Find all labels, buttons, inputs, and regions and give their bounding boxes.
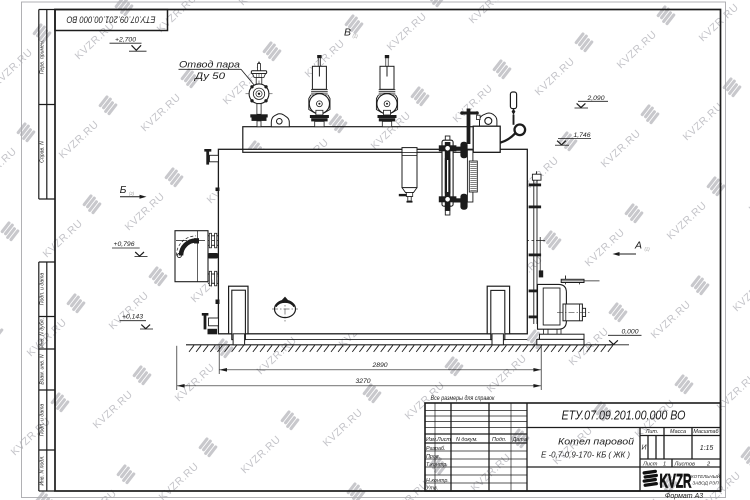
svg-text:Н.контр.: Н.контр. — [426, 478, 449, 484]
svg-text:Лист: Лист — [642, 462, 658, 468]
svg-text:В: В — [344, 27, 351, 39]
svg-text:Взам. инв. N: Взам. инв. N — [40, 354, 46, 384]
svg-text:Листов: Листов — [674, 462, 695, 468]
svg-text:Подп.: Подп. — [492, 437, 506, 443]
svg-text:1:15: 1:15 — [700, 445, 714, 452]
svg-text:(2): (2) — [645, 247, 651, 252]
svg-text:Инв. N дубл.: Инв. N дубл. — [40, 318, 46, 348]
svg-text:ЗАВОД РЭП: ЗАВОД РЭП — [692, 481, 719, 486]
svg-text:Лист: Лист — [436, 437, 451, 443]
svg-text:N докум.: N докум. — [456, 437, 478, 443]
svg-text:Подп. и дата: Подп. и дата — [40, 404, 46, 437]
svg-text:Дата: Дата — [512, 437, 527, 443]
svg-text:Разраб.: Разраб. — [426, 446, 446, 452]
svg-text:КОТЕЛЬНЫЙ: КОТЕЛЬНЫЙ — [691, 472, 721, 479]
svg-text:ЕТУ.07.09.201.00.000 ВО: ЕТУ.07.09.201.00.000 ВО — [562, 409, 686, 423]
svg-text:Утв.: Утв. — [425, 486, 438, 492]
svg-text:Лит.: Лит. — [645, 429, 659, 435]
svg-text:Б: Б — [120, 184, 127, 196]
svg-text:+0,143: +0,143 — [122, 314, 143, 321]
svg-text:0,000: 0,000 — [621, 328, 638, 335]
svg-text:Котел паровой: Котел паровой — [558, 437, 634, 447]
svg-text:+2,700: +2,700 — [115, 36, 136, 43]
svg-text:(2): (2) — [353, 34, 359, 39]
svg-text:Отвод пара: Отвод пара — [179, 59, 240, 70]
svg-text:Подп. и дата: Подп. и дата — [40, 273, 46, 306]
svg-text:2,090: 2,090 — [586, 95, 604, 102]
svg-text:Е -0,7-0,9-170- КБ ( ЖК ): Е -0,7-0,9-170- КБ ( ЖК ) — [541, 451, 630, 460]
svg-text:KVZR: KVZR — [660, 472, 692, 493]
svg-text:3270: 3270 — [355, 378, 370, 385]
svg-text:Пров.: Пров. — [426, 454, 440, 460]
svg-text:Инв. N подл.: Инв. N подл. — [40, 455, 46, 485]
svg-text:Справ. N: Справ. N — [40, 141, 46, 163]
svg-text:Масштаб: Масштаб — [693, 429, 719, 435]
svg-text:Масса: Масса — [670, 429, 686, 435]
svg-text:А: А — [634, 240, 642, 252]
svg-text:Все размеры для справок: Все размеры для справок — [431, 394, 496, 402]
svg-text:1,746: 1,746 — [573, 132, 590, 139]
svg-text:Т.контр.: Т.контр. — [426, 462, 448, 468]
svg-text:2890: 2890 — [371, 362, 387, 369]
svg-text:Ду 50: Ду 50 — [194, 70, 226, 81]
svg-text:Изм.: Изм. — [426, 437, 438, 443]
svg-text:1: 1 — [663, 462, 666, 468]
svg-text:+0,796: +0,796 — [114, 241, 135, 248]
svg-text:(2): (2) — [129, 191, 135, 196]
svg-text:Перв. примен.: Перв. примен. — [40, 40, 46, 74]
svg-text:Формат А3: Формат А3 — [665, 493, 703, 500]
svg-text:ЕТУ.07.09.201.00.000 ВО: ЕТУ.07.09.201.00.000 ВО — [66, 14, 155, 25]
